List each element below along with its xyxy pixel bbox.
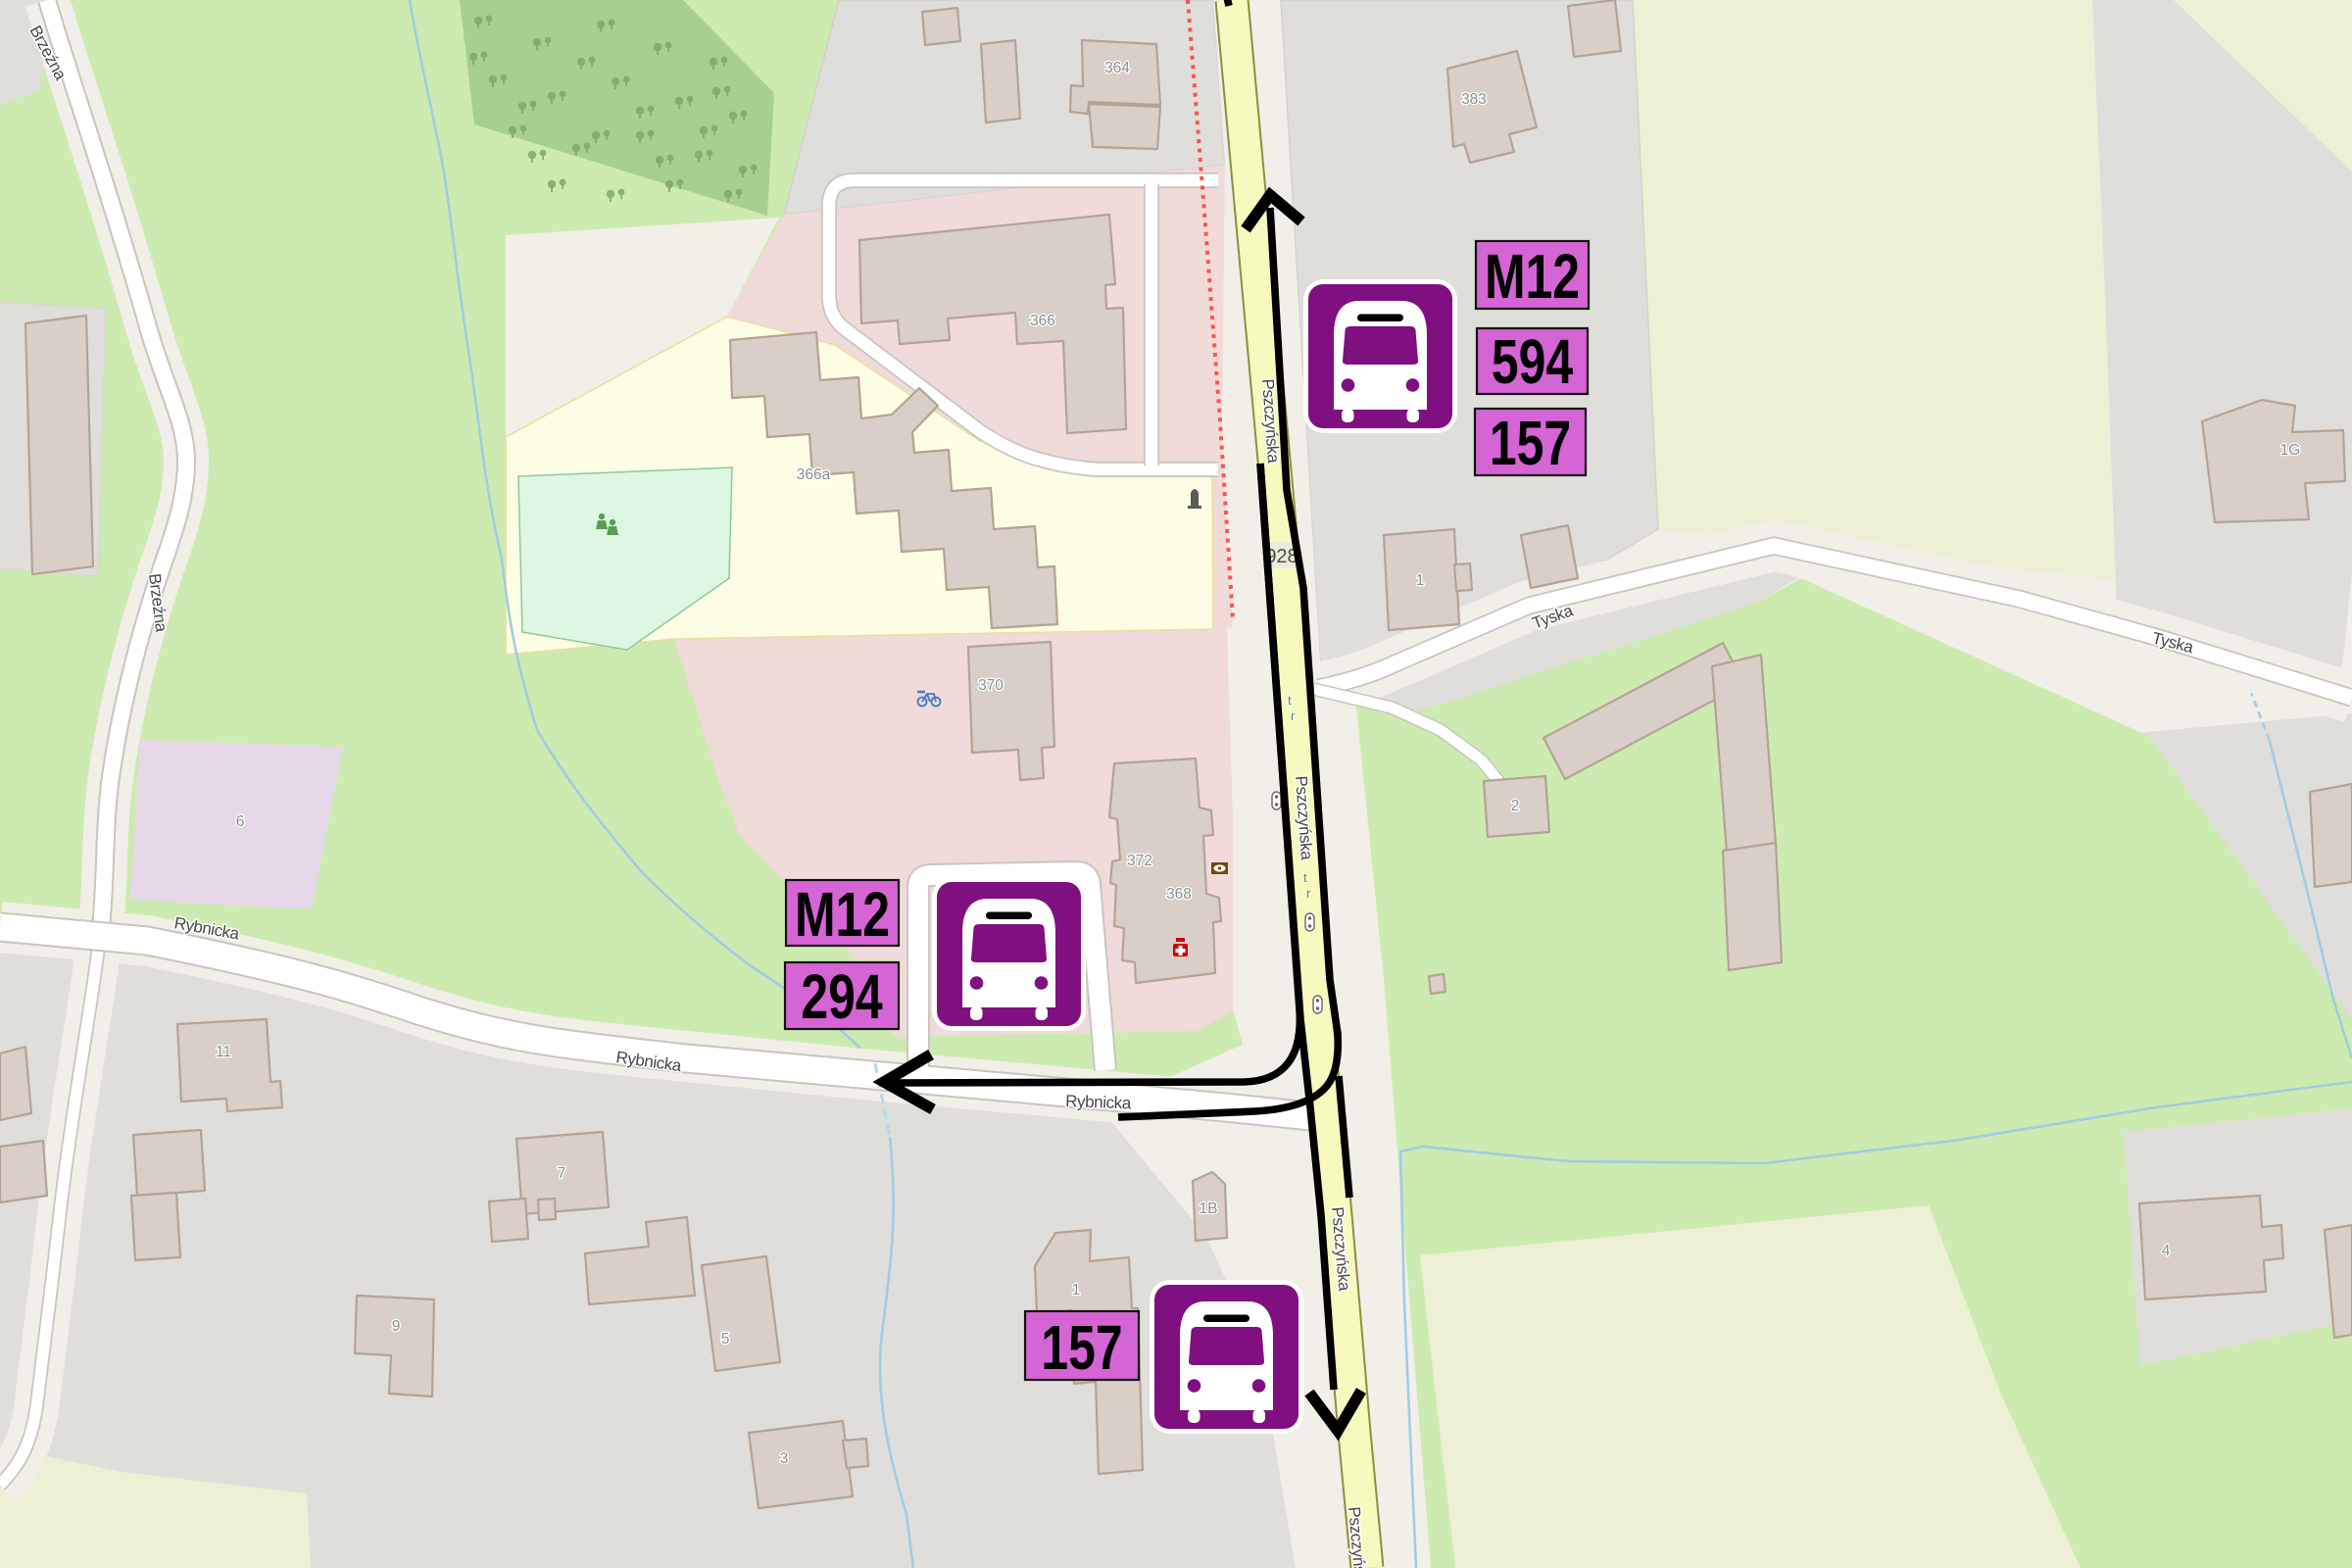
- svg-text:9: 9: [392, 1318, 401, 1335]
- svg-text:r: r: [1306, 886, 1311, 901]
- svg-text:1B: 1B: [1200, 1200, 1218, 1217]
- svg-text:6: 6: [236, 813, 245, 830]
- svg-text:3: 3: [780, 1450, 789, 1467]
- svg-text:7: 7: [558, 1165, 566, 1182]
- svg-text:M12: M12: [1485, 242, 1580, 312]
- svg-text:M12: M12: [795, 880, 890, 950]
- svg-text:366: 366: [1030, 313, 1055, 329]
- svg-text:364: 364: [1104, 60, 1130, 76]
- svg-text:r: r: [1291, 709, 1296, 723]
- svg-text:370: 370: [978, 677, 1004, 694]
- svg-text:1: 1: [1072, 1282, 1081, 1298]
- svg-text:t: t: [1303, 870, 1307, 885]
- svg-text:4: 4: [2162, 1243, 2171, 1259]
- svg-text:Rybnicka: Rybnicka: [1065, 1092, 1132, 1112]
- svg-text:1: 1: [1416, 572, 1425, 589]
- svg-text:157: 157: [1041, 1313, 1122, 1383]
- svg-text:383: 383: [1461, 91, 1487, 108]
- svg-text:368: 368: [1166, 886, 1192, 903]
- svg-text:372: 372: [1127, 853, 1152, 869]
- svg-text:t: t: [1288, 693, 1292, 708]
- svg-text:5: 5: [721, 1331, 730, 1347]
- svg-text:157: 157: [1490, 409, 1571, 478]
- svg-text:594: 594: [1492, 327, 1573, 397]
- svg-text:366a: 366a: [797, 466, 831, 483]
- svg-text:11: 11: [216, 1044, 231, 1060]
- svg-text:2: 2: [1511, 798, 1520, 814]
- svg-text:294: 294: [801, 962, 882, 1032]
- svg-text:1G: 1G: [2280, 442, 2301, 459]
